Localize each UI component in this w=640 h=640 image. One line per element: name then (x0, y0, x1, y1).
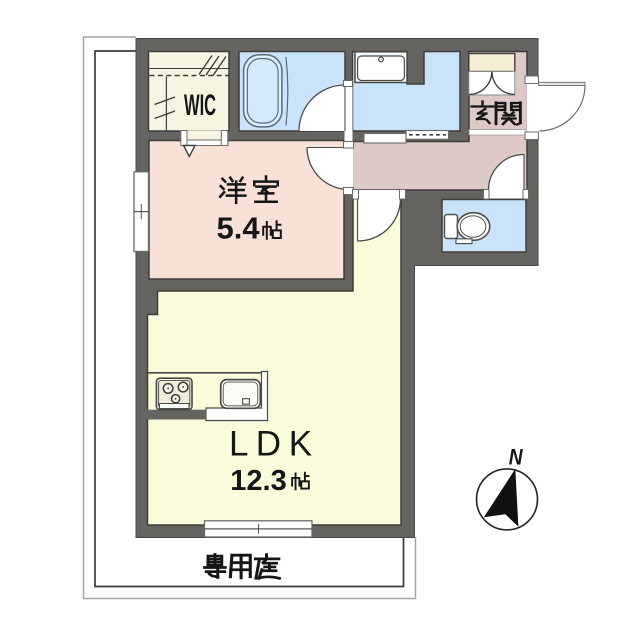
svg-text:D: D (256, 425, 281, 464)
svg-text:L: L (229, 425, 248, 464)
svg-text:12.3: 12.3 (230, 465, 286, 497)
svg-text:WIC: WIC (184, 89, 216, 122)
svg-text:5.4: 5.4 (217, 211, 261, 246)
svg-text:K: K (289, 425, 312, 464)
svg-text:N: N (509, 445, 524, 470)
